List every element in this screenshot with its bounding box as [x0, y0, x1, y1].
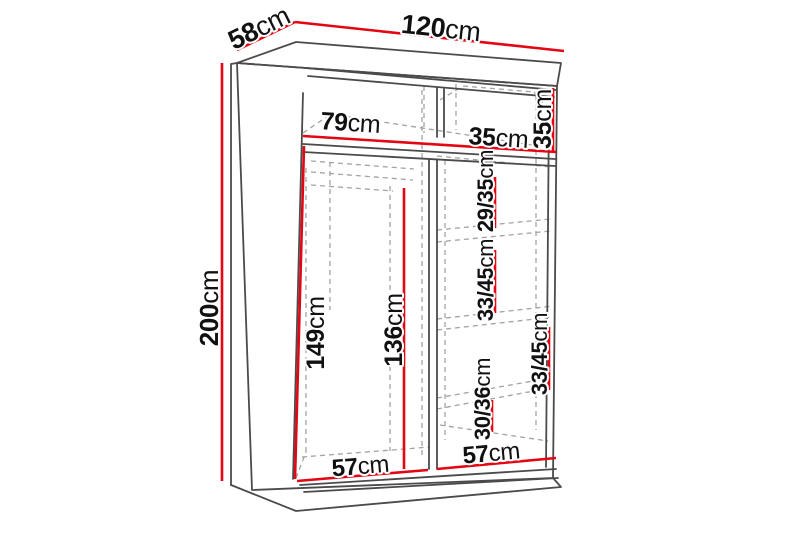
plinth	[231, 478, 561, 511]
dim-label-width: 120cm	[400, 9, 482, 47]
dim-label-right-section-1: 29/35cm	[473, 150, 498, 232]
wardrobe-diagram-canvas: 58cm 120cm 200cm 79cm 35cm 35cm 29/35cm …	[0, 0, 800, 533]
dim-label-floor-right: 57cm	[461, 437, 521, 469]
wardrobe-dimension-diagram: 58cm 120cm 200cm 79cm 35cm 35cm 29/35cm …	[0, 0, 800, 533]
dim-label-interior-right-width: 35cm	[468, 122, 530, 154]
dim-label-right-section-2: 33/45cm	[473, 239, 498, 321]
clothes-rail-line	[311, 172, 413, 180]
dim-label-floor-left: 57cm	[331, 451, 391, 483]
dim-label-left-interior-height: 149cm	[302, 296, 330, 370]
left-side-edge	[231, 63, 237, 485]
clothes-rail-line	[311, 185, 393, 191]
dim-label-interior-left-width: 79cm	[320, 107, 382, 139]
top-face	[237, 42, 561, 86]
dim-label-depth: 58cm	[223, 0, 294, 55]
hidden-edge-line	[311, 161, 414, 169]
dim-label-top-right-height: 35cm	[529, 89, 557, 149]
dim-label-right-section-3: 33/45cm	[527, 313, 552, 395]
dim-label-height: 200cm	[194, 270, 224, 347]
hidden-edge-line	[296, 452, 306, 478]
dim-label-right-section-4: 30/36cm	[470, 358, 495, 440]
dim-label-rod-height: 136cm	[380, 293, 408, 367]
